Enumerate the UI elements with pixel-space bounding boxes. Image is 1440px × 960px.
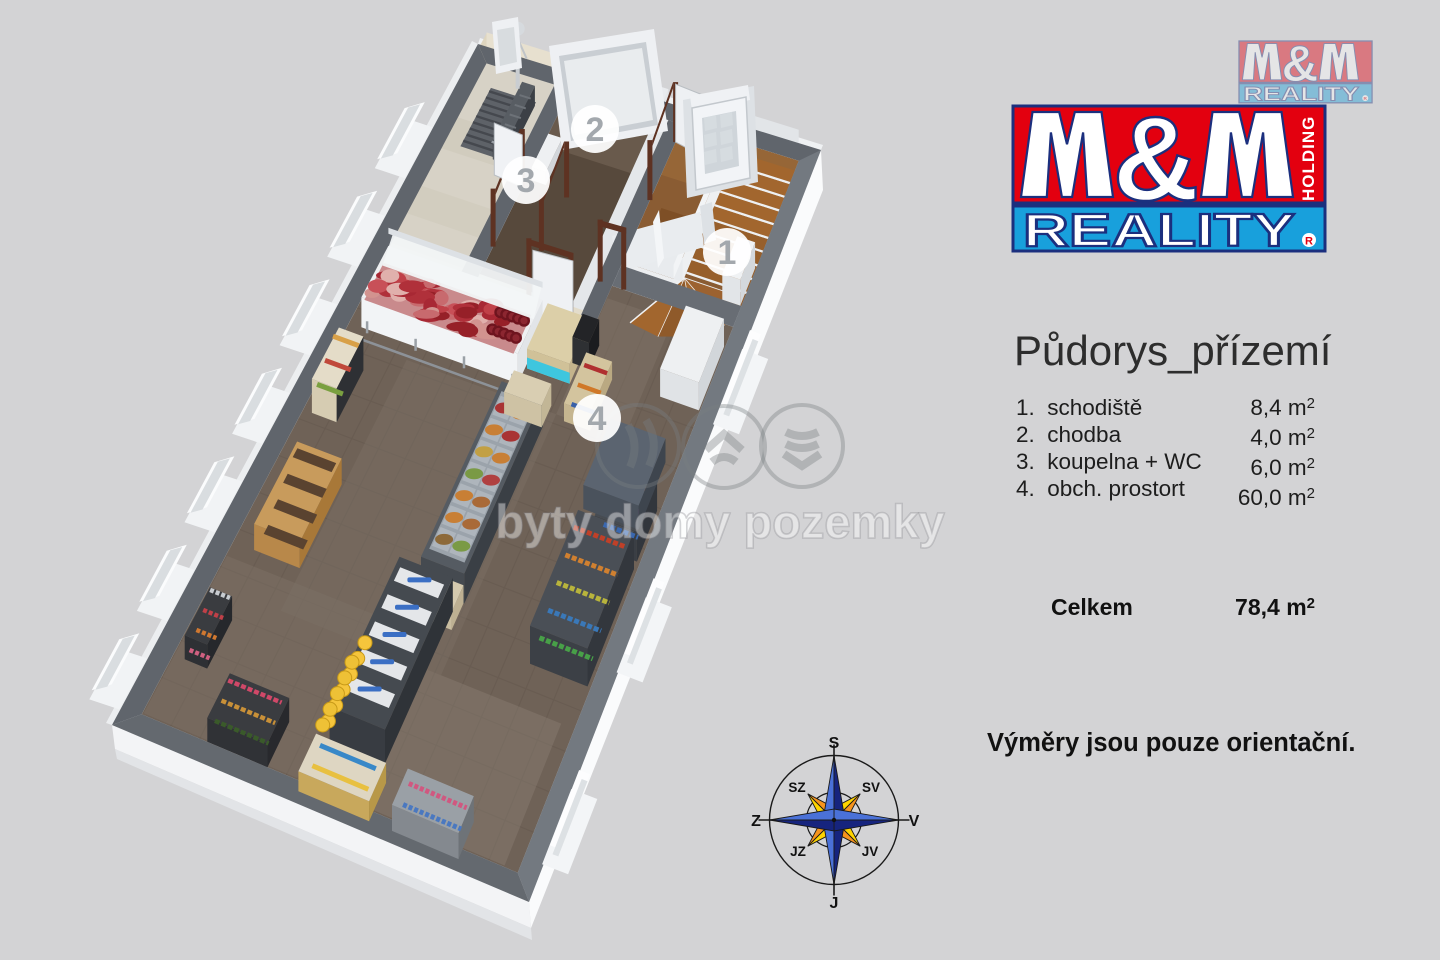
- svg-text:JV: JV: [862, 844, 879, 859]
- svg-text:Z: Z: [751, 813, 761, 830]
- svg-text:byty domy pozemky: byty domy pozemky: [495, 495, 944, 548]
- svg-text:SZ: SZ: [788, 780, 805, 795]
- svg-text:REALITY: REALITY: [1243, 84, 1359, 106]
- svg-text:R: R: [1305, 236, 1313, 248]
- svg-text:V: V: [909, 813, 920, 830]
- svg-text:3: 3: [517, 162, 536, 200]
- svg-text:HOLDING: HOLDING: [1299, 116, 1318, 201]
- svg-text:SV: SV: [862, 780, 880, 795]
- svg-text:S: S: [829, 735, 840, 752]
- svg-text:1: 1: [718, 234, 737, 272]
- svg-text:JZ: JZ: [790, 844, 806, 859]
- svg-text:2: 2: [586, 111, 605, 149]
- svg-text:J: J: [830, 895, 839, 912]
- svg-text:REALITY: REALITY: [1023, 204, 1295, 256]
- svg-text:4: 4: [588, 400, 607, 438]
